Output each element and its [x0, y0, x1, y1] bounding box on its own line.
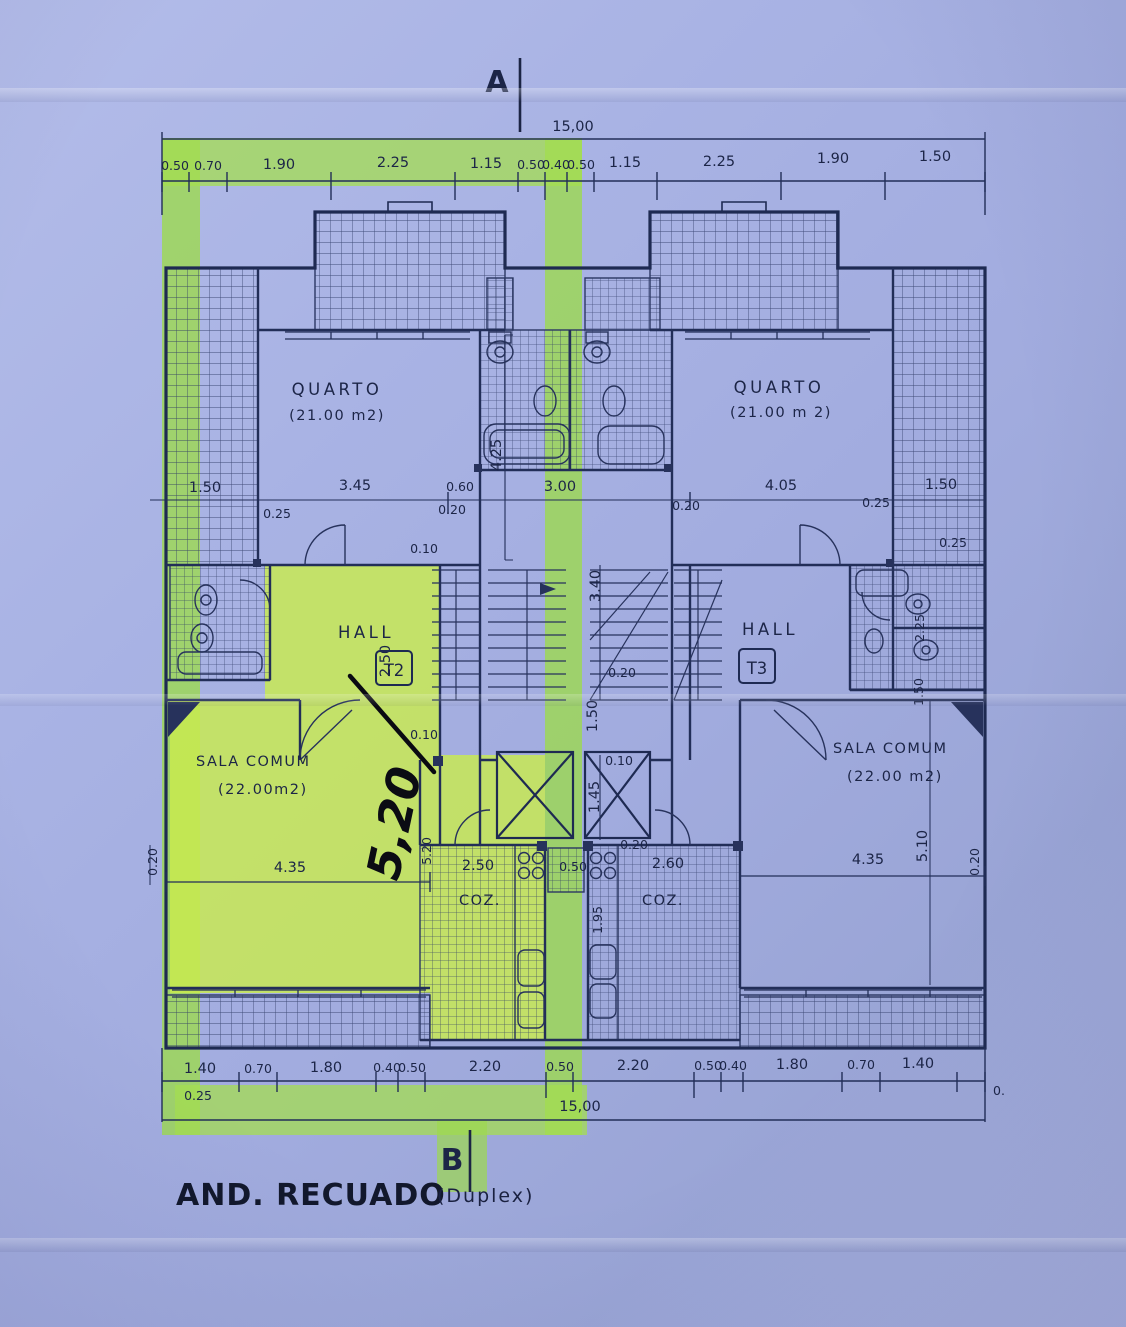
dim-label: 1.90 [263, 157, 295, 173]
dim-label: 0.70 [244, 1061, 272, 1076]
room-area-quarto-left: (21.00 m2) [289, 408, 385, 424]
dim-label: 0.25 [184, 1088, 212, 1103]
dim-label: 2.20 [469, 1059, 501, 1075]
dim-label: 0.50 [694, 1058, 722, 1073]
drawing-title: AND. RECUADO [176, 1178, 446, 1213]
unit-label-t2: T2 [383, 661, 405, 680]
room-label-sala-right: SALA COMUM [833, 741, 948, 757]
dim-label: 0.25 [862, 495, 890, 510]
dim-label: 0.40 [373, 1060, 401, 1075]
room-label-hall-left: HALL [338, 623, 394, 642]
dim-label-vertical: 1.50 [585, 700, 601, 732]
dim-label-vertical: 3.40 [588, 570, 604, 602]
dim-label-vertical: 1.45 [587, 781, 603, 813]
floorplan-photo: A B 15,00 0.50 0.70 1.90 2.25 1.15 0.50 … [0, 0, 1126, 1327]
dim-label: 1.90 [817, 151, 849, 167]
section-marker-a: A [485, 65, 509, 100]
room-label-sala-left: SALA COMUM [196, 754, 311, 770]
dim-label: 1.50 [189, 480, 221, 496]
dim-label: 2.20 [617, 1058, 649, 1074]
dim-label: 0.10 [410, 541, 438, 556]
section-marker-b: B [441, 1143, 464, 1178]
drawing-title-suffix: (Duplex) [437, 1185, 534, 1207]
dim-label: 0.70 [847, 1057, 875, 1072]
room-area-sala-right: (22.00 m2) [847, 769, 943, 785]
dim-label: 0.40 [719, 1058, 747, 1073]
dim-label: 0.50 [161, 158, 189, 173]
dim-label: 0.50 [546, 1059, 574, 1074]
dim-label: 1.80 [310, 1060, 342, 1076]
dim-label: 0.20 [672, 498, 700, 513]
room-label-hall-right: HALL [742, 620, 798, 639]
dim-label: 0.50 [567, 157, 595, 172]
dim-label: 0. [993, 1083, 1005, 1098]
dim-label: 0.25 [939, 535, 967, 550]
dim-label: 0.20 [438, 502, 466, 517]
dim-label: 2.25 [377, 155, 409, 171]
unit-label-t3: T3 [746, 659, 768, 678]
dim-label: 1.80 [776, 1057, 808, 1073]
dim-label: 0.50 [398, 1060, 426, 1075]
room-area-sala-left: (22.00m2) [218, 782, 308, 798]
room-area-quarto-right: (21.00 m 2) [730, 405, 832, 421]
room-label-coz-right: COZ. [642, 893, 684, 909]
dim-label: 0.20 [620, 837, 648, 852]
dim-label: 3.45 [339, 478, 371, 494]
dim-label: 0.70 [194, 158, 222, 173]
dim-label: 1.40 [184, 1061, 216, 1077]
dim-label-vertical: 2.25 [912, 614, 927, 642]
room-label-quarto-left: QUARTO [292, 380, 383, 399]
dim-label: 2.60 [652, 856, 684, 872]
dim-label: 1.15 [609, 155, 641, 171]
dim-label-vertical: 1.95 [590, 906, 605, 934]
dim-label-vertical: 5.10 [915, 830, 931, 862]
dim-label: 0.10 [605, 753, 633, 768]
room-label-quarto-right: QUARTO [734, 378, 825, 397]
dim-label-vertical: 1.50 [911, 678, 926, 706]
dim-label: 2.50 [462, 858, 494, 874]
room-label-coz-left: COZ. [459, 893, 501, 909]
dim-label: 4.05 [765, 478, 797, 494]
dim-label: 0.20 [608, 665, 636, 680]
dim-label: 1.50 [919, 149, 951, 165]
dim-label-vertical: 4.25 [489, 439, 505, 471]
dim-label: 4.35 [274, 860, 306, 876]
dim-label-vertical: 0.20 [967, 848, 982, 876]
dim-label: 0.60 [446, 479, 474, 494]
dim-label: 0.10 [410, 727, 438, 742]
dim-label: 0.50 [559, 859, 587, 874]
dim-label: 4.35 [852, 852, 884, 868]
dim-total-bottom: 15,00 [559, 1099, 601, 1115]
dim-label-vertical: 0.20 [145, 848, 160, 876]
dim-label: 0.25 [263, 506, 291, 521]
dim-label-vertical: 5.20 [419, 837, 434, 865]
dim-label: 1.50 [925, 477, 957, 493]
dim-label: 1.15 [470, 156, 502, 172]
dim-label: 2.25 [703, 154, 735, 170]
dim-label: 0.40 [542, 157, 570, 172]
dim-label: 3.00 [544, 479, 576, 495]
dim-label: 1.40 [902, 1056, 934, 1072]
dim-label: 0.50 [517, 157, 545, 172]
dim-total-top: 15,00 [552, 119, 594, 135]
floorplan-drawing: A B 15,00 0.50 0.70 1.90 2.25 1.15 0.50 … [0, 0, 1126, 1327]
